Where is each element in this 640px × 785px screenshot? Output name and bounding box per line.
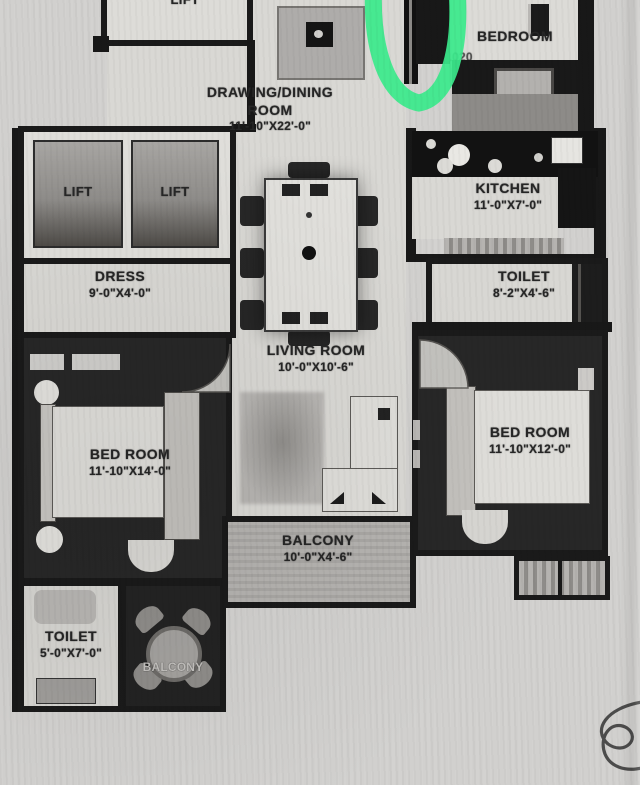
- window-chajja: [514, 556, 610, 600]
- bedroom-left-name: BED ROOM: [42, 446, 218, 464]
- bedroom-right-name: BED ROOM: [452, 424, 608, 442]
- bedroom-right-label: BED ROOM 11'-10"X12'-0": [452, 424, 608, 457]
- centerpiece-icon: [302, 246, 316, 260]
- kitchen-dims: 11'-0"X7'-0": [438, 198, 578, 213]
- burner-icon: [488, 159, 502, 173]
- burner-icon: [426, 139, 436, 149]
- window-slot: [413, 450, 420, 468]
- dining-chair-icon: [240, 248, 264, 278]
- drawing-dining-label: DRAWING/DINING ROOM 11'-10"X22'-0": [194, 84, 346, 134]
- dining-chair-icon: [288, 162, 330, 178]
- kitchen-label: KITCHEN 11'-0"X7'-0": [438, 180, 578, 213]
- lift-a-text: LIFT: [35, 184, 121, 200]
- lift-a-label: LIFT: [35, 184, 121, 200]
- bedroom-top-text: BEDROOM: [452, 28, 578, 46]
- toilet-left-dims: 5'-0"X7'-0": [20, 646, 122, 661]
- place-setting-icon: [310, 184, 328, 196]
- stool-icon: [34, 380, 59, 405]
- lift-room-top: LIFT: [101, 0, 253, 46]
- page-edge: [620, 0, 640, 785]
- wardrobe-box-icon: [72, 354, 120, 370]
- place-setting-icon: [282, 312, 300, 324]
- toilet-right-dims: 8'-2"X4'-6": [448, 286, 600, 301]
- sofa-icon: [322, 468, 398, 512]
- place-setting-icon: [282, 184, 300, 196]
- lift-shaft-b: LIFT: [131, 140, 219, 248]
- bedroom-left-dims: 11'-10"X14'-0": [42, 464, 218, 479]
- sofa-cushion-icon: [378, 408, 390, 420]
- living-dims: 10'-0"X10'-6": [240, 360, 392, 375]
- burner-icon: [534, 153, 543, 162]
- bedroom-left-label: BED ROOM 11'-10"X14'-0": [42, 446, 218, 479]
- lift-top-label: LIFT: [155, 0, 215, 8]
- kitchen-service-ledge: [444, 238, 564, 254]
- floor-plan: LIFT BEDROOM 1020 KITCHEN 11'-0"X7'-0" T…: [0, 0, 640, 785]
- bedroom-right-dims: 11'-10"X12'-0": [452, 442, 608, 457]
- balcony-bottom-label: BALCONY: [124, 660, 222, 675]
- side-table-icon: [578, 368, 594, 390]
- lift-b-text: LIFT: [133, 184, 217, 200]
- washbasin-icon: [36, 678, 96, 704]
- balcony-center-name: BALCONY: [240, 532, 396, 550]
- toilet-right-label: TOILET 8'-2"X4'-6": [448, 268, 600, 301]
- kitchen-name: KITCHEN: [438, 180, 578, 198]
- mat-dot-icon: [314, 30, 323, 38]
- dining-chair-icon: [240, 300, 264, 330]
- wardrobe-box-icon: [30, 354, 64, 370]
- wall-outer-right-top: [578, 0, 594, 133]
- lift-shaft-a: LIFT: [33, 140, 123, 248]
- lift-top-text: LIFT: [155, 0, 215, 8]
- bedroom-top-lower-floor: [452, 94, 578, 133]
- balcony-bottom-text: BALCONY: [124, 660, 222, 675]
- balcony-center-dims: 10'-0"X4'-6": [240, 550, 396, 565]
- centerpiece-dot-icon: [306, 212, 312, 218]
- balcony-center-label: BALCONY 10'-0"X4'-6": [240, 532, 396, 565]
- living-rug: [240, 392, 324, 504]
- living-name: LIVING ROOM: [240, 342, 392, 360]
- toilet-left-label: TOILET 5'-0"X7'-0": [20, 628, 122, 661]
- burner-icon: [437, 158, 453, 174]
- place-setting-icon: [310, 312, 328, 324]
- scan-paper: LIFT BEDROOM 1020 KITCHEN 11'-0"X7'-0" T…: [0, 0, 640, 785]
- stool-icon: [36, 526, 63, 553]
- living-label: LIVING ROOM 10'-0"X10'-6": [240, 342, 392, 375]
- dress-dims: 9'-0"X4'-0": [40, 286, 200, 301]
- window-mullion: [558, 560, 562, 596]
- dress-label: DRESS 9'-0"X4'-0": [40, 268, 200, 301]
- dress-name: DRESS: [40, 268, 200, 286]
- toilet-right-name: TOILET: [448, 268, 600, 286]
- wall-step: [93, 36, 109, 52]
- lift-b-label: LIFT: [133, 184, 217, 200]
- drawing-dining-name1: DRAWING/DINING: [194, 84, 346, 102]
- bedroom-top-label: BEDROOM: [452, 28, 578, 46]
- drawing-dining-name2: ROOM: [194, 102, 346, 120]
- dining-chair-icon: [240, 196, 264, 226]
- window-slot: [413, 420, 420, 440]
- drawing-dining-dims: 11'-10"X22'-0": [194, 119, 346, 134]
- toilet-left-name: TOILET: [20, 628, 122, 646]
- stove-icon: [551, 137, 583, 164]
- wc-icon: [34, 590, 96, 624]
